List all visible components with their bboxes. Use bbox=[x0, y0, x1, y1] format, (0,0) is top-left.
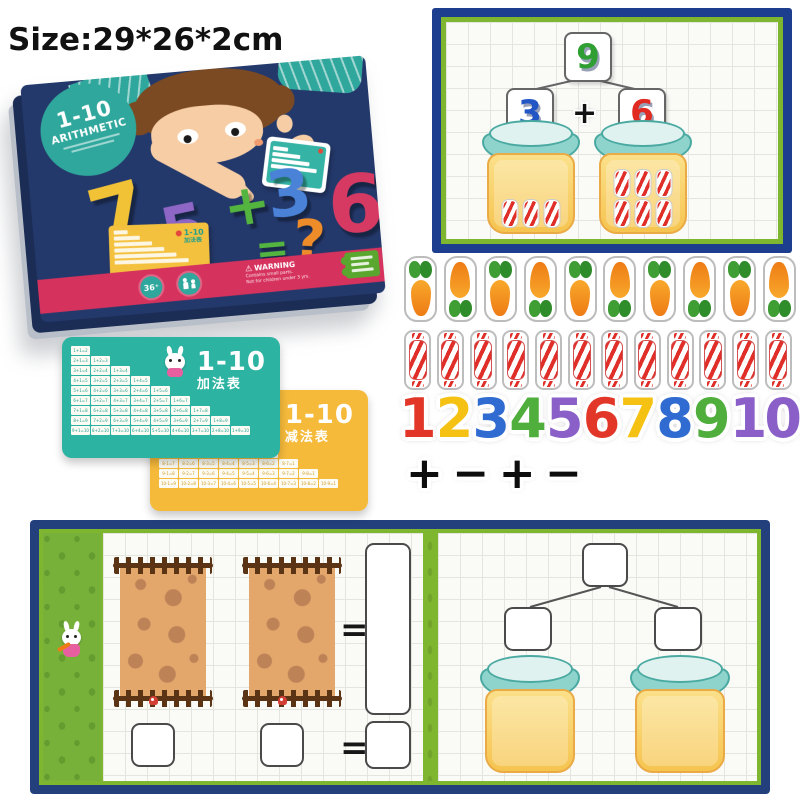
candy-body bbox=[605, 340, 623, 380]
number-sticker-8: 8 bbox=[656, 392, 691, 446]
equation-cell: 6+3=9 bbox=[111, 416, 130, 425]
carrot-sticker bbox=[723, 256, 756, 322]
equation-cell: 4+4=8 bbox=[131, 406, 150, 415]
table-row: 8+1=97+2=96+3=95+4=94+5=93+6=92+7=91+8=9 bbox=[71, 416, 271, 425]
age-badge: 36⁺ bbox=[139, 275, 163, 299]
candy-in-jar bbox=[636, 170, 651, 197]
equation-cell: 3+6=9 bbox=[171, 416, 190, 425]
operator-sticker: − bbox=[452, 452, 489, 496]
equation-cell: 10-7=3 bbox=[279, 479, 298, 488]
carrot-body bbox=[490, 280, 510, 316]
carrot-body bbox=[450, 262, 470, 298]
candy-body bbox=[474, 340, 492, 380]
equation-cell: 9-6=3 bbox=[259, 469, 278, 478]
equation-cell: 8+2=10 bbox=[91, 426, 110, 435]
candy-body bbox=[441, 340, 459, 380]
number-sticker-9: 9 bbox=[693, 392, 728, 446]
candy-sticker bbox=[568, 330, 595, 390]
carrot-leaf bbox=[569, 261, 581, 278]
carrot-body bbox=[411, 280, 431, 316]
addition-card-range: 1-10 bbox=[197, 349, 266, 375]
boy-ear bbox=[276, 114, 294, 133]
number-sticker-2: 2 bbox=[436, 392, 471, 446]
addition-table-card: 1+1=22+1=31+2=33+1=42+2=41+3=44+1=53+2=5… bbox=[62, 337, 280, 458]
mushroom-icon bbox=[149, 696, 158, 705]
equation-cell: 2+2=4 bbox=[91, 366, 110, 375]
subtraction-card-range: 1-10 bbox=[285, 402, 354, 428]
play-board-frame: = = bbox=[39, 529, 761, 785]
number-sticker-7: 7 bbox=[620, 392, 655, 446]
mini-stair-bar bbox=[114, 247, 164, 253]
fence-bottom bbox=[242, 690, 342, 707]
equation-cell: 7+2=9 bbox=[91, 416, 110, 425]
box-front-cover: 1-10 ARITHMETIC 75+36 = ? 1-10 加法表 36⁺ ⚠… bbox=[20, 55, 385, 322]
table-row: 9-1=89-2=79-3=69-4=59-5=49-6=39-7=29-8=1 bbox=[159, 469, 359, 478]
equation-cell: 2+1=3 bbox=[71, 356, 90, 365]
garden-plot bbox=[117, 557, 209, 707]
equation-cell: 9-5=4 bbox=[239, 469, 258, 478]
box-equation-char: 6 bbox=[326, 163, 386, 246]
equation-cell: 10-3=7 bbox=[199, 479, 218, 488]
equation-cell: 5+2=7 bbox=[91, 396, 110, 405]
bond-slot-top bbox=[582, 543, 628, 587]
candy-sticker bbox=[667, 330, 694, 390]
empty-jar-left bbox=[480, 655, 580, 773]
equation-cell: 5+3=8 bbox=[111, 406, 130, 415]
play-page-right bbox=[438, 533, 757, 781]
equation-cell: 3+3=6 bbox=[111, 386, 130, 395]
candy-body bbox=[638, 340, 656, 380]
answer-slot bbox=[131, 723, 175, 767]
equation-cell: 4+1=5 bbox=[71, 376, 90, 385]
equation-cell: 4+3=7 bbox=[111, 396, 130, 405]
table-row: 8-1=78-2=68-3=58-4=48-5=38-6=28-7=1 bbox=[159, 459, 359, 468]
equation-cell: 1+6=7 bbox=[171, 396, 190, 405]
mushroom-icon bbox=[278, 696, 287, 705]
flashcard-logo-dot bbox=[318, 148, 324, 154]
carrot-sticker bbox=[564, 256, 597, 322]
equation-cell: 5+4=9 bbox=[131, 416, 150, 425]
equation-cell: 5+1=6 bbox=[71, 386, 90, 395]
equation-cell: 1+1=2 bbox=[71, 346, 90, 355]
equation-cell: 7+1=8 bbox=[71, 406, 90, 415]
candy-sticker bbox=[634, 330, 661, 390]
carrot-body bbox=[570, 280, 590, 316]
carrot-row bbox=[404, 256, 796, 322]
board-center-divider bbox=[423, 533, 438, 781]
fence-top bbox=[242, 557, 342, 574]
equation-cell: 1+2=3 bbox=[91, 356, 110, 365]
jar-candies-left bbox=[503, 200, 560, 227]
rabbit-mascot bbox=[57, 621, 87, 665]
table-row: 6+1=75+2=74+3=73+4=72+5=71+6=7 bbox=[71, 396, 271, 405]
candy-sticker bbox=[601, 330, 628, 390]
play-board: = = bbox=[30, 520, 770, 794]
equation-cell: 9-8=1 bbox=[299, 469, 318, 478]
equation-cell: 1+5=6 bbox=[151, 386, 170, 395]
candy-in-jar bbox=[545, 200, 560, 227]
candy-body bbox=[704, 340, 722, 380]
candy-sticker bbox=[699, 330, 726, 390]
jar-candies-right bbox=[615, 170, 672, 227]
equation-cell: 8+1=9 bbox=[71, 416, 90, 425]
equation-cell: 6+2=8 bbox=[91, 406, 110, 415]
family-icon bbox=[183, 278, 196, 289]
candy-sticker bbox=[470, 330, 497, 390]
empty-jar-right bbox=[630, 655, 730, 773]
jar-body bbox=[485, 689, 575, 773]
carrot-body bbox=[530, 262, 550, 298]
addition-card-title: 加法表 bbox=[197, 378, 266, 391]
table-row: 9+1=108+2=107+3=106+4=105+5=104+6=103+7=… bbox=[71, 426, 271, 435]
carrot-sticker bbox=[763, 256, 796, 322]
operator-stickers: +−+− bbox=[406, 452, 582, 496]
equation-cell: 5+5=10 bbox=[151, 426, 170, 435]
candy-body bbox=[737, 340, 755, 380]
candy-in-jar bbox=[503, 200, 518, 227]
number-sticker-1: 1 bbox=[399, 392, 434, 446]
number-sticker-3: 3 bbox=[473, 392, 508, 446]
equation-cell: 8-4=4 bbox=[219, 459, 238, 468]
candy-sticker bbox=[437, 330, 464, 390]
candy-body bbox=[573, 340, 591, 380]
equation-cell: 4+5=9 bbox=[151, 416, 170, 425]
equation-cell: 6+1=7 bbox=[71, 396, 90, 405]
carrot-sticker bbox=[404, 256, 437, 322]
product-box: 1-10 ARITHMETIC 75+36 = ? 1-10 加法表 36⁺ ⚠… bbox=[20, 55, 385, 322]
candy-in-jar bbox=[615, 170, 630, 197]
equation-cell: 8-2=6 bbox=[179, 459, 198, 468]
warning-icon: ⚠ bbox=[245, 264, 253, 274]
equation-cell: 2+4=6 bbox=[131, 386, 150, 395]
equation-cell: 4+2=6 bbox=[91, 386, 110, 395]
equation-cell: 10-8=2 bbox=[299, 479, 318, 488]
candy-sticker bbox=[732, 330, 759, 390]
equation-cell: 10-6=4 bbox=[259, 479, 278, 488]
candy-in-jar bbox=[657, 170, 672, 197]
board-green-frame: 9 3 6 + bbox=[441, 17, 783, 244]
candy-in-jar bbox=[636, 200, 651, 227]
equation-cell: 9+1=10 bbox=[71, 426, 90, 435]
carrot-sticker bbox=[643, 256, 676, 322]
carrot-leaf bbox=[739, 261, 751, 278]
candy-jar-right bbox=[594, 120, 692, 234]
bond-slot-left bbox=[504, 607, 552, 651]
mini-stair-bar bbox=[114, 230, 128, 234]
play-page-left: = = bbox=[103, 533, 423, 781]
carrot-body bbox=[610, 262, 630, 298]
carrot-leaf bbox=[500, 261, 512, 278]
mini-logo-dot bbox=[176, 230, 182, 236]
answer-slot bbox=[365, 721, 411, 769]
equation-cell: 1+9=10 bbox=[231, 426, 250, 435]
fence-bottom bbox=[113, 690, 213, 707]
board-side-strip bbox=[43, 533, 101, 781]
candy-jar-left bbox=[482, 120, 580, 234]
table-row: 10-1=910-2=810-3=710-4=610-5=510-6=410-7… bbox=[159, 479, 359, 488]
carrot-leaf bbox=[420, 261, 432, 278]
equation-cell: 3+5=8 bbox=[151, 406, 170, 415]
candy-in-jar bbox=[524, 200, 539, 227]
equation-cell: 4+6=10 bbox=[171, 426, 190, 435]
carrot-sticker bbox=[603, 256, 636, 322]
rabbit-icon bbox=[162, 347, 188, 377]
candy-body bbox=[409, 340, 427, 380]
equation-cell: 8-3=5 bbox=[199, 459, 218, 468]
equation-cell: 2+6=8 bbox=[171, 406, 190, 415]
equation-cell: 2+7=9 bbox=[191, 416, 210, 425]
family-badge bbox=[177, 272, 201, 296]
equation-cell: 7+3=10 bbox=[111, 426, 130, 435]
candy-row bbox=[404, 330, 792, 390]
equation-cell: 9-3=6 bbox=[199, 469, 218, 478]
answer-slot-tall bbox=[365, 543, 411, 715]
operator-sticker: + bbox=[499, 452, 536, 496]
equation-cell: 2+3=5 bbox=[111, 376, 130, 385]
number-sticker-4: 4 bbox=[509, 392, 544, 446]
bond-card-top: 9 bbox=[564, 32, 612, 82]
carrot-leaf bbox=[460, 300, 472, 317]
subtraction-card-title: 减法表 bbox=[285, 431, 354, 444]
bond-top-number: 9 bbox=[576, 37, 600, 77]
plot-soil bbox=[120, 566, 206, 698]
boy-cheek bbox=[254, 139, 264, 147]
carrot-body bbox=[690, 262, 710, 298]
carrot-leaf bbox=[580, 261, 592, 278]
equation-cell: 6+4=10 bbox=[131, 426, 150, 435]
equation-cell: 9-2=7 bbox=[179, 469, 198, 478]
candy-body bbox=[507, 340, 525, 380]
equation-cell: 10-2=8 bbox=[179, 479, 198, 488]
equation-cell: 8-1=7 bbox=[159, 459, 178, 468]
candy-sticker bbox=[502, 330, 529, 390]
carrot-leaf bbox=[699, 300, 711, 317]
equation-cell: 1+7=8 bbox=[191, 406, 210, 415]
candy-in-jar bbox=[657, 200, 672, 227]
board-grid-page: 9 3 6 + bbox=[446, 22, 778, 239]
carrot-sticker bbox=[524, 256, 557, 322]
equation-cell: 1+8=9 bbox=[211, 416, 230, 425]
carrot-body bbox=[650, 280, 670, 316]
equation-cell: 3+1=4 bbox=[71, 366, 90, 375]
equation-cell: 8-7=1 bbox=[279, 459, 298, 468]
carrot-sticker bbox=[683, 256, 716, 322]
number-sticker-10: 10 bbox=[730, 392, 799, 446]
equation-cell: 1+3=4 bbox=[111, 366, 130, 375]
carrot-leaf bbox=[489, 261, 501, 278]
jar-body bbox=[635, 689, 725, 773]
carrot-leaf bbox=[779, 300, 791, 317]
equation-cell: 2+8=10 bbox=[211, 426, 230, 435]
equation-cell: 2+5=7 bbox=[151, 396, 170, 405]
equation-cell: 10-1=9 bbox=[159, 479, 178, 488]
bond-slot-right bbox=[654, 607, 702, 651]
carrot-leaf bbox=[619, 300, 631, 317]
carrot-leaf bbox=[540, 300, 552, 317]
mini-card-cn: 加法表 bbox=[184, 237, 204, 244]
operator-sticker: − bbox=[545, 452, 582, 496]
equation-cell: 3+4=7 bbox=[131, 396, 150, 405]
equation-cell: 8-5=3 bbox=[239, 459, 258, 468]
candy-sticker bbox=[535, 330, 562, 390]
candy-in-jar bbox=[615, 200, 630, 227]
carrot-body bbox=[730, 280, 750, 316]
equation-cell: 10-9=1 bbox=[319, 479, 338, 488]
equation-cell: 10-4=6 bbox=[219, 479, 238, 488]
equation-cell: 3+7=10 bbox=[191, 426, 210, 435]
carrot-sticker bbox=[444, 256, 477, 322]
carrot-sticker bbox=[484, 256, 517, 322]
equation-cell: 1+4=5 bbox=[131, 376, 150, 385]
carrot-leaf bbox=[659, 261, 671, 278]
size-label: Size:29*26*2cm bbox=[8, 22, 283, 58]
mini-stair-bar bbox=[114, 236, 140, 241]
mini-stair-bar bbox=[114, 241, 152, 246]
equation-cell: 8-6=2 bbox=[259, 459, 278, 468]
candy-sticker bbox=[404, 330, 431, 390]
brand-logo bbox=[344, 250, 380, 279]
number-sticker-6: 6 bbox=[583, 392, 618, 446]
equation-cell: 10-5=5 bbox=[239, 479, 258, 488]
equation-cell: 9-7=2 bbox=[279, 469, 298, 478]
number-stickers: 12345678910 bbox=[399, 392, 799, 446]
candy-sticker bbox=[765, 330, 792, 390]
equation-cell: 3+2=5 bbox=[91, 376, 110, 385]
table-row: 7+1=86+2=85+3=84+4=83+5=82+6=81+7=8 bbox=[71, 406, 271, 415]
fence-top bbox=[113, 557, 213, 574]
number-bond-board: 9 3 6 + bbox=[432, 8, 792, 253]
carrot-body bbox=[769, 262, 789, 298]
mini-stair-bar bbox=[115, 258, 189, 265]
garden-plot bbox=[246, 557, 338, 707]
warning-block: ⚠WARNING Contains small parts. Not for c… bbox=[245, 258, 310, 285]
operator-sticker: + bbox=[406, 452, 443, 496]
answer-slot bbox=[260, 723, 304, 767]
mini-stair-bar bbox=[114, 252, 176, 258]
candy-body bbox=[540, 340, 558, 380]
equation-cell: 9-4=5 bbox=[219, 469, 238, 478]
equation-cell: 9-1=8 bbox=[159, 469, 178, 478]
number-sticker-5: 5 bbox=[546, 392, 581, 446]
candy-body bbox=[671, 340, 689, 380]
candy-body bbox=[769, 340, 787, 380]
plot-soil bbox=[249, 566, 335, 698]
